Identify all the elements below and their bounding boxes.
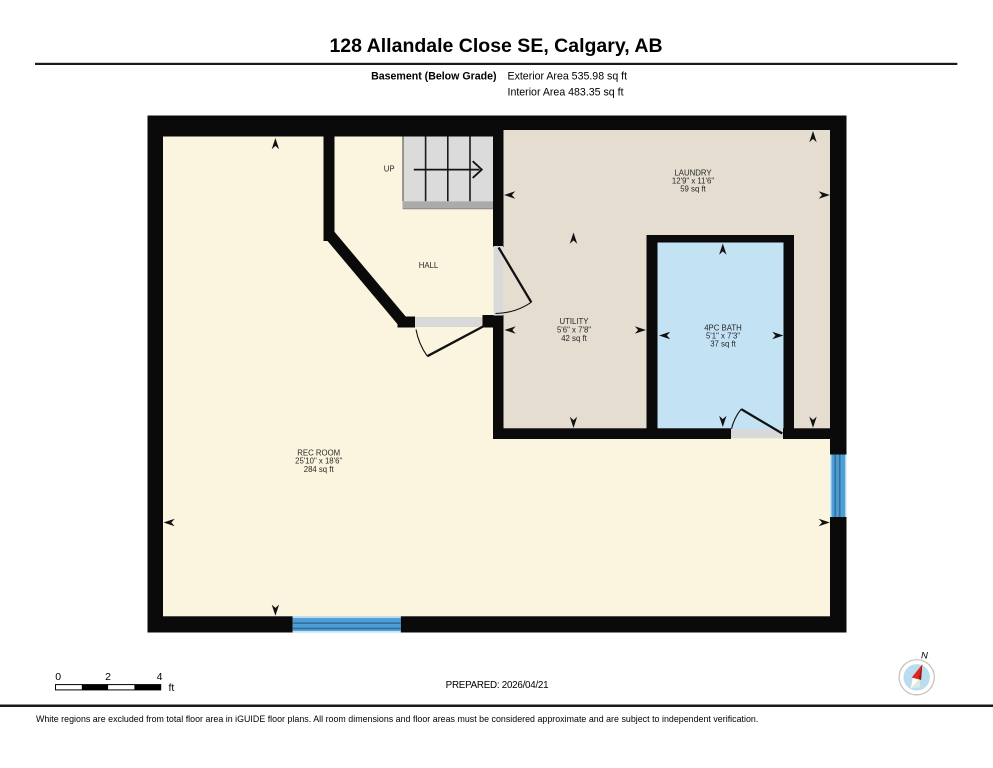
svg-text:UP: UP <box>384 165 395 174</box>
svg-text:White regions are excluded fro: White regions are excluded from total fl… <box>36 714 758 724</box>
svg-text:2: 2 <box>105 671 111 683</box>
svg-text:PREPARED: 2026/04/21: PREPARED: 2026/04/21 <box>446 680 549 691</box>
svg-text:4: 4 <box>157 671 163 683</box>
svg-text:284 sq ft: 284 sq ft <box>304 465 335 474</box>
svg-text:Basement (Below Grade): Basement (Below Grade) <box>371 70 496 82</box>
svg-text:Interior Area 483.35 sq ft: Interior Area 483.35 sq ft <box>508 86 624 98</box>
svg-text:37 sq ft: 37 sq ft <box>710 339 736 348</box>
svg-text:59 sq ft: 59 sq ft <box>680 185 706 194</box>
svg-text:ft: ft <box>169 682 175 694</box>
svg-text:HALL: HALL <box>419 261 439 270</box>
svg-text:Exterior Area 535.98 sq ft: Exterior Area 535.98 sq ft <box>508 70 628 82</box>
svg-text:0: 0 <box>55 671 61 683</box>
svg-text:42 sq ft: 42 sq ft <box>561 334 587 343</box>
svg-text:N: N <box>921 651 928 662</box>
svg-text:128 Allandale Close SE, Calgar: 128 Allandale Close SE, Calgary, AB <box>329 35 662 57</box>
